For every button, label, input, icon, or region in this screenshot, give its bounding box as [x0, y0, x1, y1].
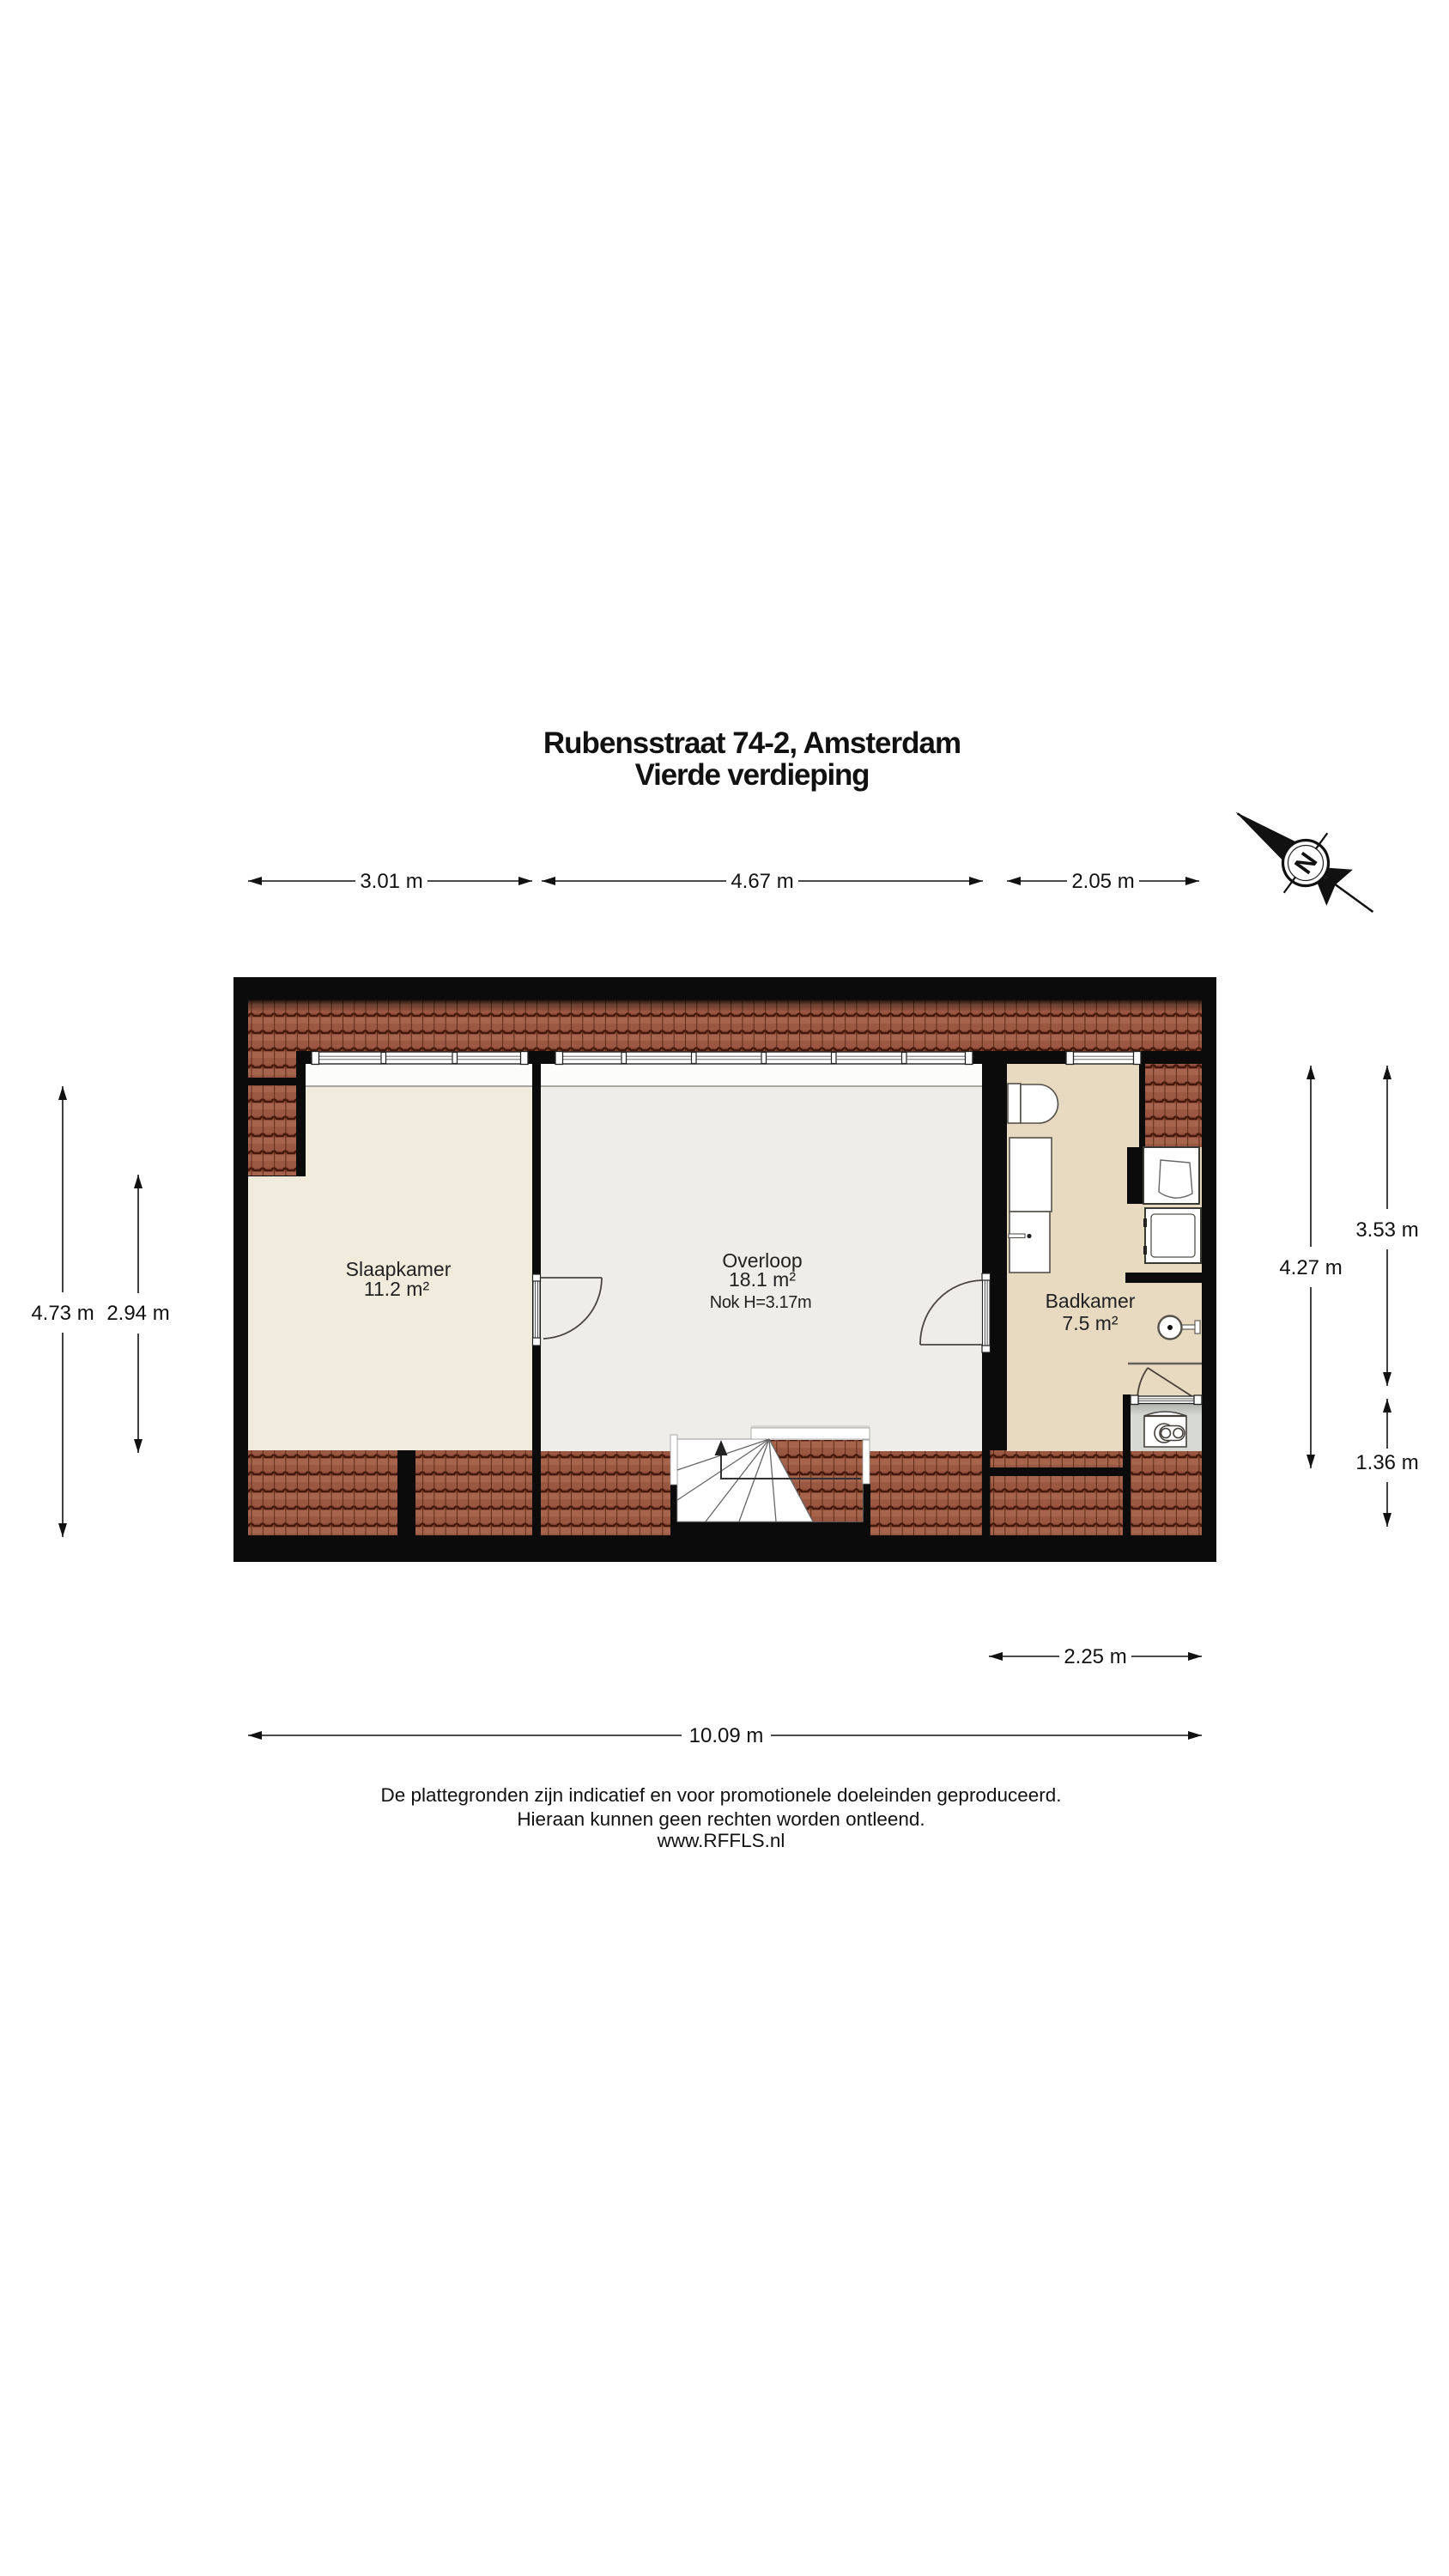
- svg-text:2.05 m: 2.05 m: [1071, 870, 1134, 893]
- svg-text:3.01 m: 3.01 m: [360, 870, 422, 893]
- svg-text:Badkamer: Badkamer: [1046, 1290, 1136, 1312]
- svg-text:1.36 m: 1.36 m: [1355, 1451, 1418, 1474]
- svg-text:11.2 m²: 11.2 m²: [364, 1278, 430, 1300]
- svg-text:De plattegronden zijn indicati: De plattegronden zijn indicatief en voor…: [380, 1784, 1061, 1806]
- svg-text:4.67 m: 4.67 m: [731, 870, 793, 893]
- svg-text:Rubensstraat 74-2, Amsterdam: Rubensstraat 74-2, Amsterdam: [543, 726, 961, 760]
- svg-text:10.09 m: 10.09 m: [689, 1724, 764, 1747]
- svg-text:Hieraan kunnen geen rechten wo: Hieraan kunnen geen rechten worden ontle…: [517, 1808, 925, 1830]
- svg-text:7.5 m²: 7.5 m²: [1062, 1312, 1119, 1334]
- svg-text:4.27 m: 4.27 m: [1279, 1256, 1342, 1279]
- svg-text:2.25 m: 2.25 m: [1064, 1645, 1126, 1668]
- svg-text:2.94 m: 2.94 m: [106, 1302, 169, 1325]
- svg-text:www.RFFLS.nl: www.RFFLS.nl: [657, 1830, 785, 1851]
- svg-text:Nok H=3.17m: Nok H=3.17m: [710, 1293, 811, 1312]
- svg-text:Vierde verdieping: Vierde verdieping: [635, 758, 870, 792]
- svg-text:18.1 m²: 18.1 m²: [729, 1268, 796, 1291]
- svg-text:3.53 m: 3.53 m: [1355, 1218, 1418, 1242]
- svg-text:4.73 m: 4.73 m: [31, 1302, 94, 1325]
